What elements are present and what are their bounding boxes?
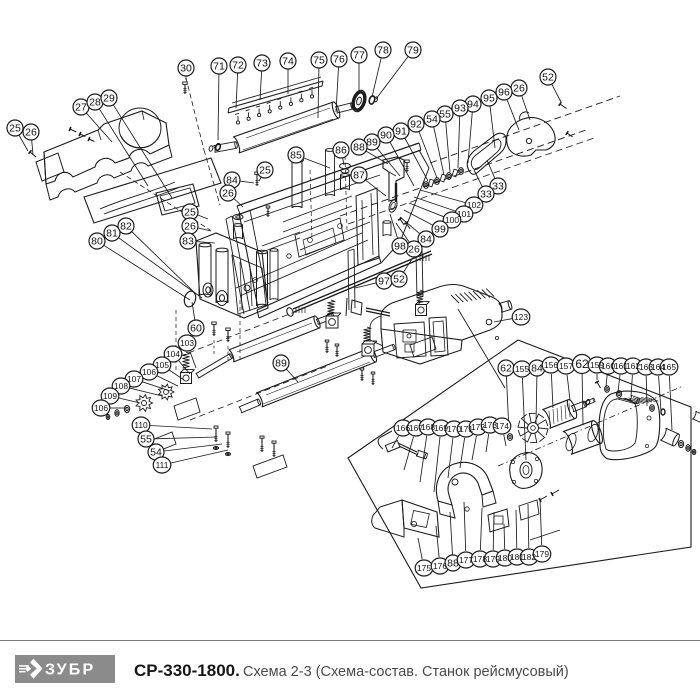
svg-text:71: 71	[213, 61, 225, 73]
svg-text:86: 86	[335, 145, 347, 157]
svg-text:26: 26	[25, 127, 37, 139]
svg-text:101: 101	[457, 209, 471, 219]
svg-text:72: 72	[232, 60, 244, 72]
svg-text:105: 105	[155, 360, 169, 370]
svg-text:54: 54	[426, 114, 438, 126]
svg-text:76: 76	[333, 54, 345, 66]
svg-text:52: 52	[542, 72, 554, 84]
svg-text:54: 54	[150, 447, 162, 459]
svg-text:108: 108	[114, 381, 128, 391]
svg-text:89: 89	[275, 358, 287, 370]
svg-text:25: 25	[184, 207, 196, 219]
svg-text:26: 26	[184, 221, 196, 233]
svg-text:109: 109	[103, 391, 117, 401]
svg-text:25: 25	[9, 123, 21, 135]
svg-text:77: 77	[353, 50, 365, 62]
svg-text:25: 25	[259, 165, 271, 177]
svg-text:33: 33	[492, 181, 504, 193]
svg-text:111: 111	[156, 460, 169, 470]
svg-text:155: 155	[515, 364, 529, 374]
svg-text:82: 82	[120, 221, 132, 233]
svg-text:123: 123	[514, 312, 528, 322]
svg-text:88: 88	[353, 142, 365, 154]
svg-text:75: 75	[313, 55, 325, 67]
svg-text:95: 95	[483, 93, 495, 105]
svg-text:26: 26	[513, 83, 525, 95]
svg-text:55: 55	[439, 109, 451, 121]
svg-text:179: 179	[535, 549, 549, 559]
svg-text:156: 156	[544, 360, 558, 370]
svg-text:ЗУБР: ЗУБР	[45, 662, 95, 679]
svg-text:165: 165	[662, 362, 676, 372]
svg-text:79: 79	[407, 45, 419, 57]
svg-text:33: 33	[480, 189, 492, 201]
svg-text:62: 62	[500, 363, 512, 375]
svg-text:107: 107	[127, 374, 141, 384]
svg-text:52: 52	[393, 274, 405, 286]
svg-text:88: 88	[447, 558, 459, 570]
svg-text:84: 84	[226, 175, 238, 187]
svg-text:84: 84	[420, 234, 432, 246]
svg-text:175: 175	[417, 563, 431, 573]
svg-text:30: 30	[180, 63, 192, 75]
svg-text:99: 99	[434, 224, 446, 236]
svg-text:27: 27	[75, 102, 87, 114]
svg-text:98: 98	[394, 241, 406, 253]
svg-text:106: 106	[142, 367, 156, 377]
svg-text:73: 73	[256, 58, 268, 70]
svg-text:29: 29	[103, 93, 115, 105]
svg-text:91: 91	[395, 126, 407, 138]
svg-text:177: 177	[459, 555, 473, 565]
svg-text:89: 89	[366, 137, 378, 149]
svg-text:110: 110	[134, 420, 148, 430]
svg-text:28: 28	[89, 97, 101, 109]
svg-text:74: 74	[282, 56, 294, 68]
svg-text:60: 60	[190, 323, 202, 335]
svg-text:85: 85	[290, 150, 302, 162]
svg-text:62: 62	[575, 357, 589, 371]
svg-text:103: 103	[180, 338, 194, 348]
svg-text:104: 104	[166, 349, 180, 359]
svg-text:97: 97	[378, 276, 390, 288]
svg-text:100: 100	[445, 215, 459, 225]
svg-text:157: 157	[559, 361, 573, 371]
svg-text:26: 26	[408, 244, 420, 256]
svg-text:81: 81	[106, 228, 118, 240]
svg-text:Схема 2-3 (Схема-состав. Стано: Схема 2-3 (Схема-состав. Станок рейсмусо…	[243, 664, 569, 680]
svg-text:174: 174	[495, 421, 509, 431]
svg-text:106: 106	[94, 403, 108, 413]
svg-text:93: 93	[454, 103, 466, 115]
svg-text:78: 78	[377, 45, 389, 57]
svg-text:96: 96	[498, 87, 510, 99]
svg-text:90: 90	[380, 130, 392, 142]
svg-text:92: 92	[410, 119, 422, 131]
svg-text:84: 84	[531, 363, 543, 375]
svg-text:87: 87	[353, 170, 365, 182]
svg-text:80: 80	[91, 236, 103, 248]
svg-text:94: 94	[467, 99, 479, 111]
svg-text:CP-330-1800.: CP-330-1800.	[134, 661, 240, 680]
svg-text:26: 26	[222, 188, 234, 200]
svg-text:176: 176	[433, 561, 447, 571]
svg-text:55: 55	[140, 434, 152, 446]
svg-text:83: 83	[182, 236, 194, 248]
